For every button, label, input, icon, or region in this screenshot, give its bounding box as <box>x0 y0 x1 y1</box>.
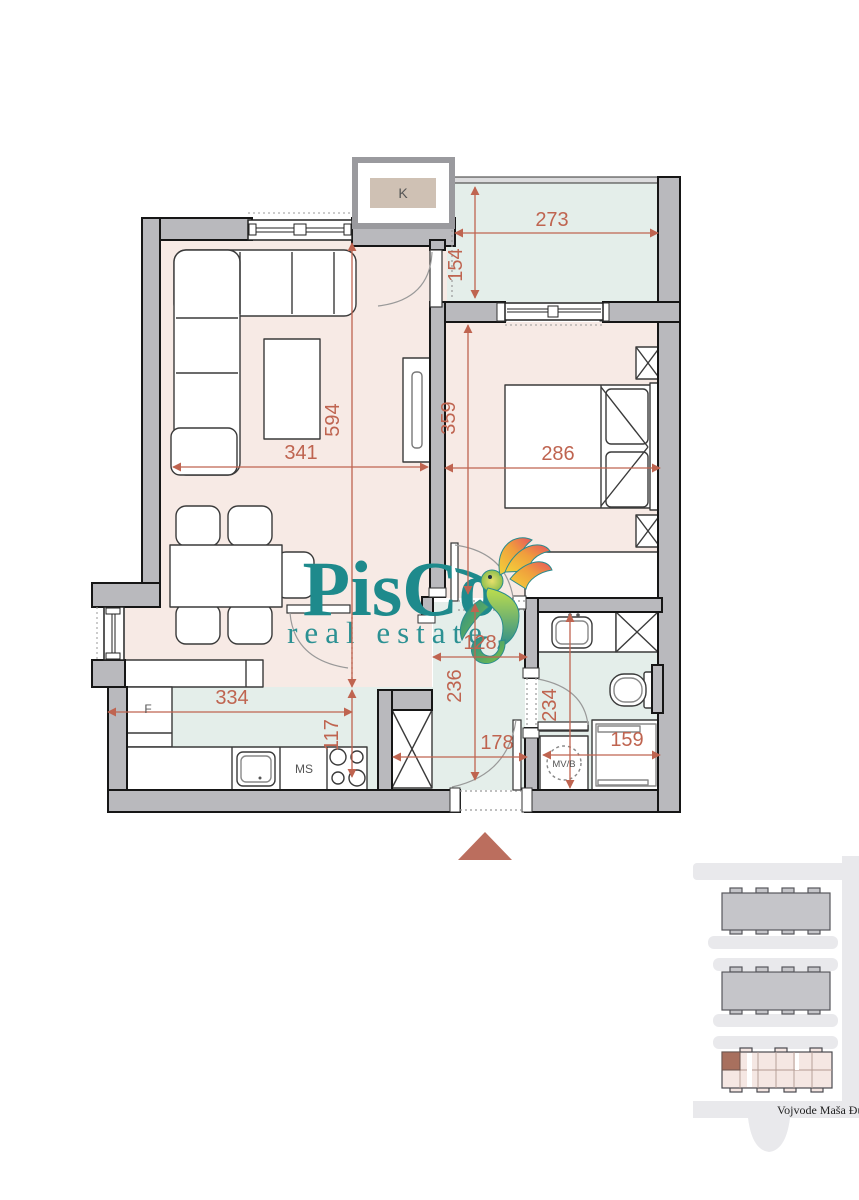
dim-living-width: 341 <box>284 442 317 464</box>
nightstand <box>636 347 660 379</box>
street-stub <box>748 1118 790 1152</box>
entrance-arrow-icon <box>458 832 512 860</box>
dining-chair <box>228 604 272 644</box>
dim-kitchen-depth: 117 <box>321 719 343 751</box>
coffee-table <box>264 339 320 439</box>
double-bed <box>505 383 660 510</box>
dim-bathroom-width: 159 <box>610 729 643 751</box>
dim-kitchen-width: 334 <box>215 687 248 709</box>
dim-hall-length: 236 <box>444 669 466 702</box>
logo-tagline-text: real estate <box>287 615 489 650</box>
building-2 <box>722 967 830 1014</box>
dim-living-length: 594 <box>322 403 344 436</box>
living-room-window <box>248 213 352 240</box>
dining-chair <box>176 604 220 644</box>
bedroom-wardrobe <box>525 552 662 598</box>
dining-chair <box>228 506 272 546</box>
floorplan-page: K PisCo real estate 273 154 594 341 359 … <box>0 0 859 1200</box>
bedroom-window <box>505 303 603 325</box>
terrace-parapet <box>452 177 658 183</box>
toilet <box>610 672 655 708</box>
dim-bedroom-length: 359 <box>438 401 460 434</box>
dim-terrace-width: 273 <box>535 209 568 231</box>
terrace-floor <box>447 183 658 302</box>
fridge-label: F <box>144 702 151 716</box>
washing-machine-label: MV/B <box>552 759 575 770</box>
kitchen-upper-cabinets <box>108 660 263 687</box>
dim-bedroom-width: 286 <box>541 443 574 465</box>
dining-table <box>170 545 282 607</box>
site-buildings <box>722 888 832 1092</box>
bathroom-cabinet <box>616 612 658 652</box>
kitchen-window <box>97 607 124 660</box>
building-3-subject <box>722 1048 832 1092</box>
dim-entry-width: 178 <box>480 732 513 754</box>
dim-bathroom-length: 234 <box>539 688 561 721</box>
building-1 <box>722 888 830 934</box>
dishwasher-label: MS <box>295 762 313 776</box>
ac-unit-label: K <box>398 185 408 201</box>
street-name-label: Vojvode Maša Đur <box>777 1103 859 1117</box>
highlighted-unit <box>722 1052 740 1070</box>
dim-hall-width: 128 <box>463 632 496 654</box>
tv-stand <box>403 358 431 462</box>
dim-terrace-depth: 154 <box>445 248 467 281</box>
dining-chair <box>176 506 220 546</box>
floorplan-canvas: K PisCo real estate 273 154 594 341 359 … <box>0 0 859 1200</box>
nightstand <box>636 515 660 547</box>
site-map: Vojvode Maša Đur <box>693 856 859 1152</box>
hall-wardrobe <box>392 710 432 788</box>
ac-unit-box: K <box>355 160 452 226</box>
bathroom-counter <box>538 612 616 652</box>
